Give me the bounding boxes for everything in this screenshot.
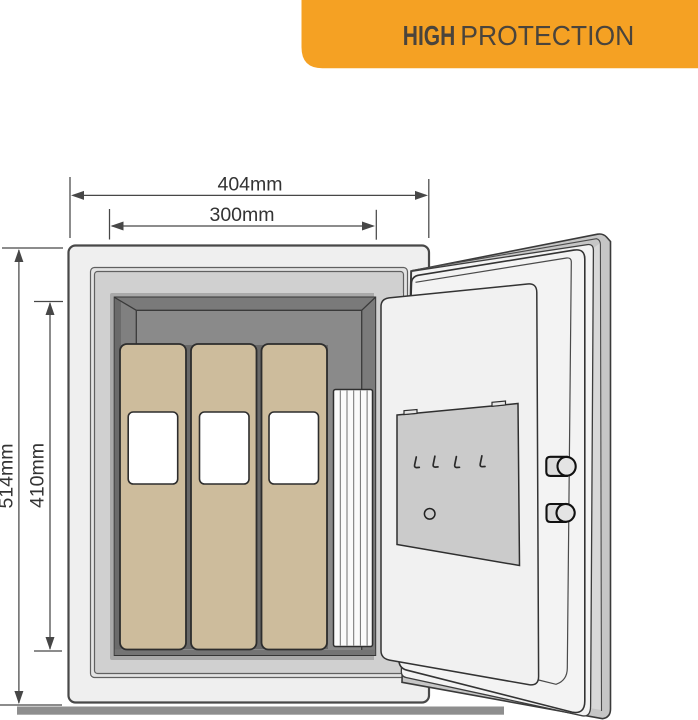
- svg-text:404mm: 404mm: [217, 174, 282, 196]
- svg-text:410mm: 410mm: [27, 443, 49, 508]
- svg-text:300mm: 300mm: [209, 204, 274, 226]
- svg-text:514mm: 514mm: [0, 443, 18, 508]
- svg-text:HIGH: HIGH: [403, 20, 456, 51]
- svg-text:PROTECTION: PROTECTION: [460, 20, 634, 51]
